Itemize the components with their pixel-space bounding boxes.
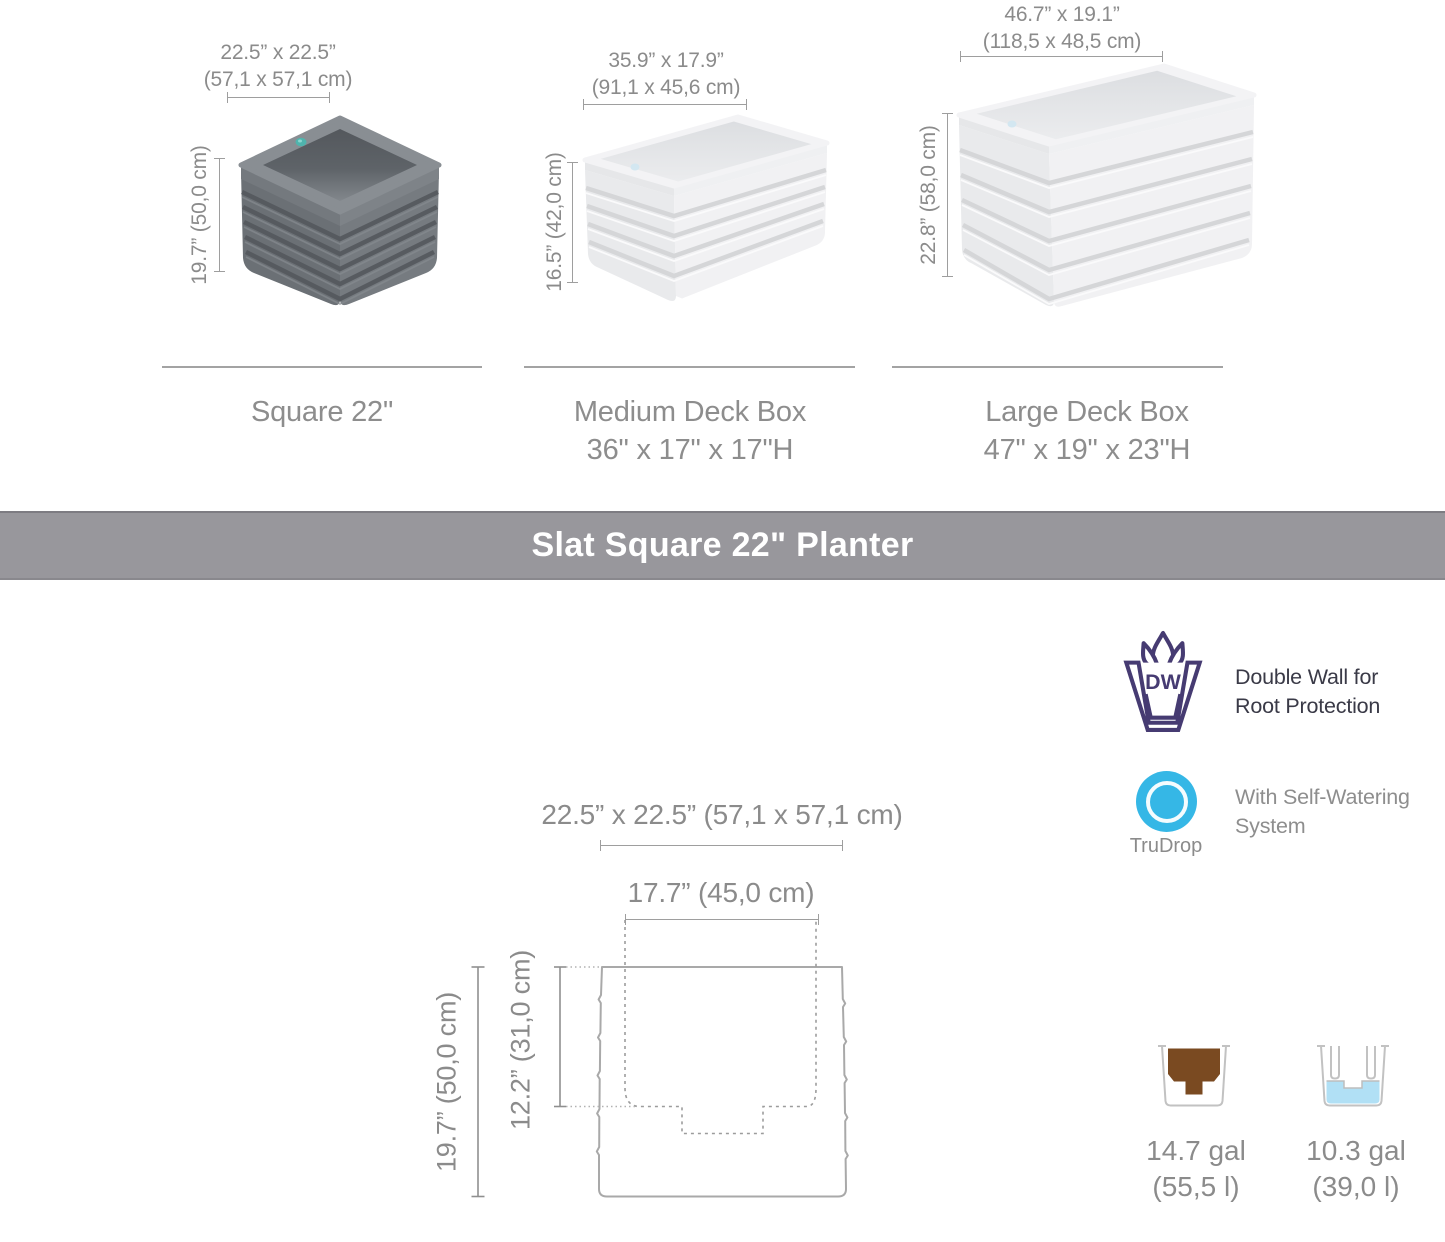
double-wall-feature-text: Double Wall for Root Protection <box>1235 663 1380 721</box>
water-capacity-text: 10.3 gal (39,0 l) <box>1306 1133 1406 1205</box>
trudrop-icon <box>1136 771 1197 832</box>
large-height-label: 22.8” (58,0 cm) <box>917 125 941 264</box>
medium-height-label: 16.5” (42,0 cm) <box>543 152 567 291</box>
large-footprint-inches: 46.7” x 19.1” <box>983 1 1141 28</box>
cross-section-outer-height-label: 19.7” (50,0 cm) <box>432 992 463 1172</box>
trudrop-port-dot <box>631 164 640 171</box>
medium-footprint-inches: 35.9” x 17.9” <box>592 47 741 74</box>
square22-height-dimension-line <box>219 158 220 272</box>
water-capacity-gal: 10.3 gal <box>1306 1133 1406 1169</box>
trudrop-port-dot <box>1008 121 1017 128</box>
cross-section-drawing <box>420 905 880 1220</box>
medium-name-line2: 36" x 17" x 17"H <box>574 431 806 469</box>
outer-height-dim-line <box>472 967 485 1197</box>
water-capacity-icon <box>1314 1044 1392 1110</box>
large-footprint-label: 46.7” x 19.1” (118,5 x 48,5 cm) <box>983 1 1141 56</box>
soil-capacity-gal: 14.7 gal <box>1146 1133 1246 1169</box>
cross-section-outer-footprint: 22.5” x 22.5” (57,1 x 57,1 cm) <box>541 799 902 831</box>
large-name: Large Deck Box 47" x 19" x 23"H <box>984 393 1191 470</box>
medium-height-dimension-line <box>572 162 573 283</box>
inner-depth-dim-line <box>554 967 566 1107</box>
double-wall-line1: Double Wall for <box>1235 663 1380 692</box>
trudrop-ring <box>1146 781 1188 823</box>
square22-planter-image <box>226 108 454 313</box>
large-height-dimension-line <box>947 113 948 277</box>
square22-width-dimension-line <box>227 97 330 98</box>
square22-name: Square 22" <box>251 393 393 431</box>
square22-divider <box>162 366 482 368</box>
square22-footprint-cm: (57,1 x 57,1 cm) <box>204 66 353 93</box>
soil-capacity-liters: (55,5 l) <box>1146 1169 1246 1205</box>
self-watering-feature-text: With Self-Watering System <box>1235 783 1410 841</box>
cross-section-inner-cavity <box>625 920 816 1134</box>
double-wall-line2: Root Protection <box>1235 692 1380 721</box>
square22-footprint-inches: 22.5” x 22.5” <box>204 39 353 66</box>
large-name-line1: Large Deck Box <box>984 393 1191 431</box>
self-watering-line2: System <box>1235 812 1410 841</box>
large-divider <box>892 366 1223 368</box>
medium-deck-box-image <box>581 112 831 314</box>
double-wall-icon-label: DW <box>1145 670 1181 694</box>
self-watering-line1: With Self-Watering <box>1235 783 1410 812</box>
medium-name-line1: Medium Deck Box <box>574 393 806 431</box>
square22-name-line1: Square 22" <box>251 393 393 431</box>
square22-footprint-label: 22.5” x 22.5” (57,1 x 57,1 cm) <box>204 39 353 94</box>
trudrop-icon-label: TruDrop <box>1130 835 1203 858</box>
title-banner: Slat Square 22" Planter <box>0 511 1445 580</box>
large-footprint-cm: (118,5 x 48,5 cm) <box>983 28 1141 55</box>
page-title: Slat Square 22" Planter <box>531 526 913 565</box>
large-width-dimension-line <box>960 56 1163 57</box>
product-dimension-sheet: 22.5” x 22.5” (57,1 x 57,1 cm) 19.7” (50… <box>0 0 1445 1242</box>
water-capacity-liters: (39,0 l) <box>1306 1169 1406 1205</box>
medium-divider <box>524 366 855 368</box>
soil-capacity-icon <box>1155 1044 1233 1110</box>
medium-name: Medium Deck Box 36" x 17" x 17"H <box>574 393 806 470</box>
cross-section-inner-depth-label: 12.2” (31,0 cm) <box>506 950 537 1130</box>
medium-footprint-cm: (91,1 x 45,6 cm) <box>592 74 741 101</box>
soil-capacity-text: 14.7 gal (55,5 l) <box>1146 1133 1246 1205</box>
large-name-line2: 47" x 19" x 23"H <box>984 431 1191 469</box>
cross-section-outer-profile <box>597 967 848 1197</box>
square22-height-label: 19.7” (50,0 cm) <box>188 145 212 284</box>
cross-section-outer-dim-line <box>600 845 843 846</box>
medium-width-dimension-line <box>583 104 747 105</box>
double-wall-icon: DW <box>1124 631 1202 735</box>
large-deck-box-image <box>950 64 1256 314</box>
medium-footprint-label: 35.9” x 17.9” (91,1 x 45,6 cm) <box>592 47 741 102</box>
